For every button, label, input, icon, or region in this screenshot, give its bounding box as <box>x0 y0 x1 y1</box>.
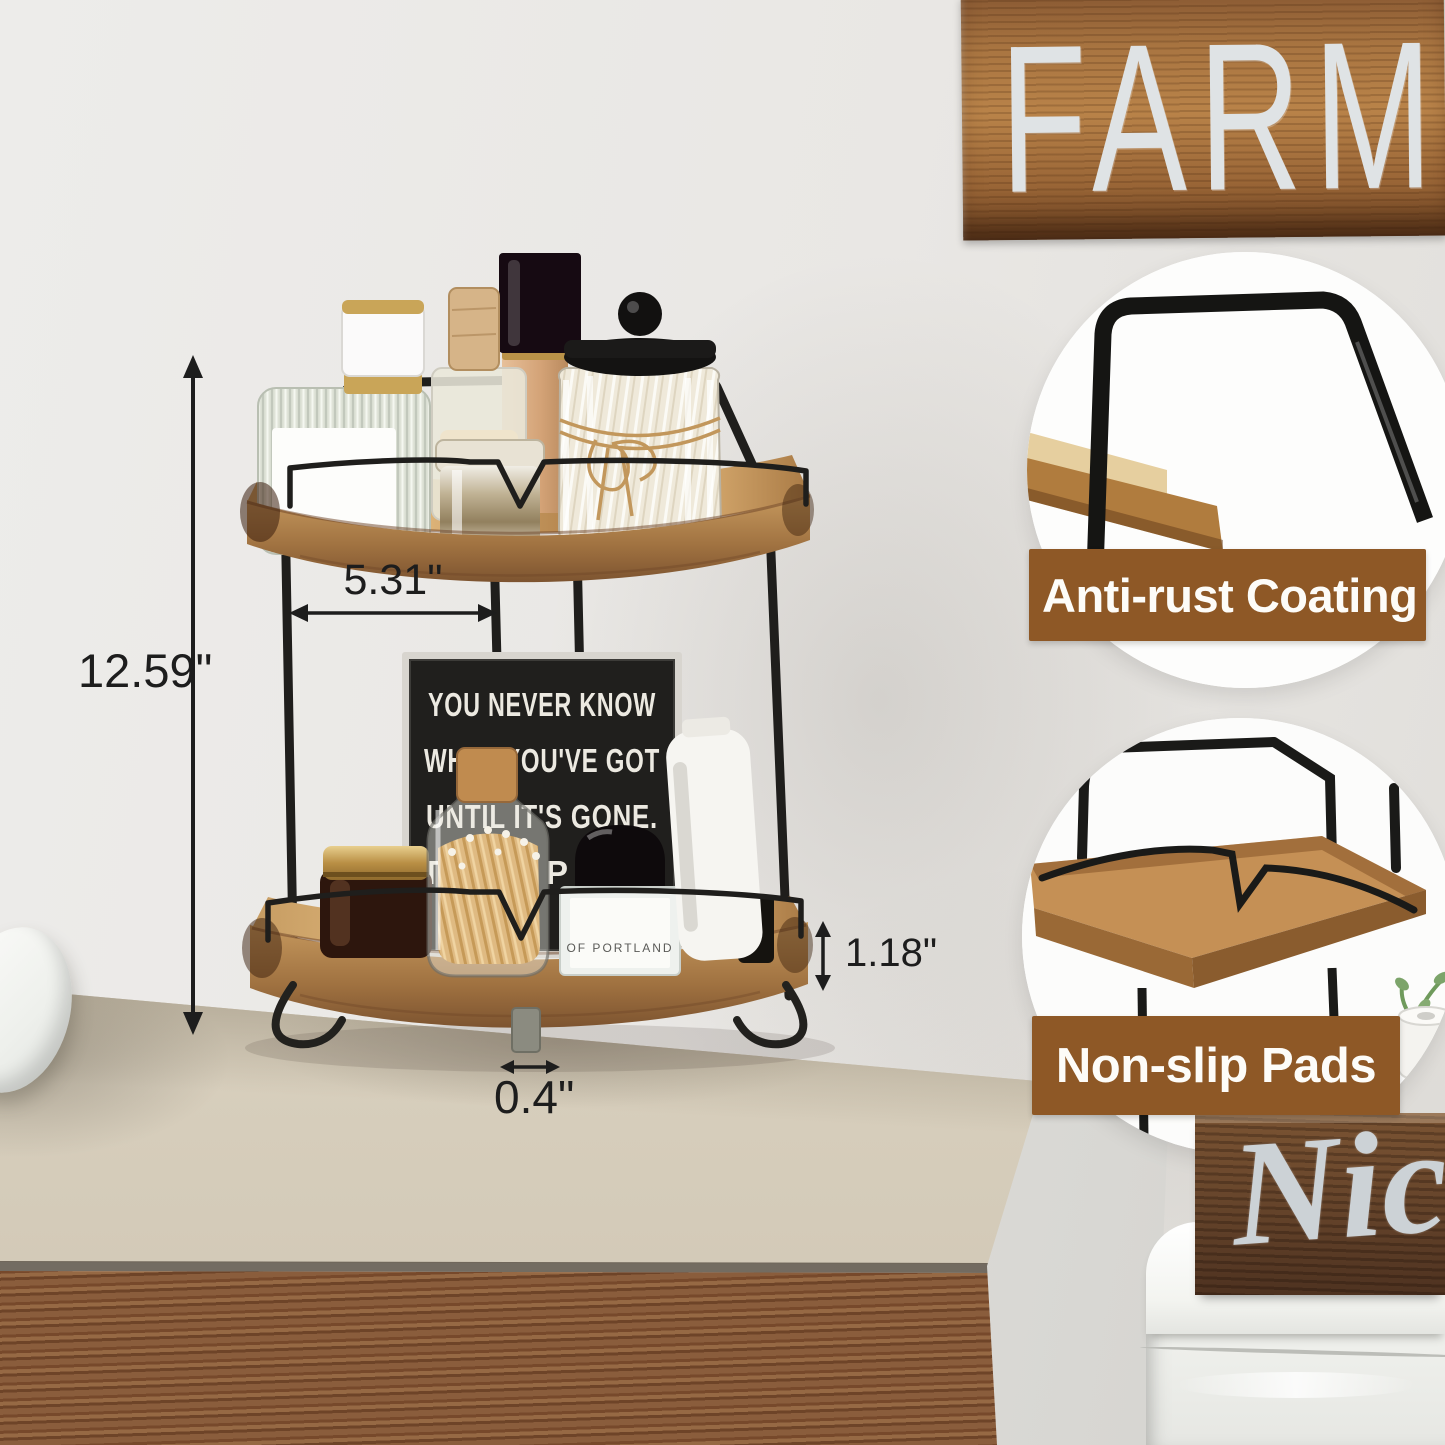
center-foot-nonslip-pad <box>512 1008 540 1052</box>
corner-shelf-organizer: YOU NEVER KNOW WHAT YOU'VE GOT UNTIL IT'… <box>170 225 870 1105</box>
perfume-bottle-black-cap: OF PORTLAND <box>560 825 680 975</box>
burnt-mark <box>242 918 282 978</box>
wood-decor-box: Nice <box>1195 1113 1445 1295</box>
anti-rust-banner-label: Anti-rust Coating <box>1042 568 1417 623</box>
burnt-mark <box>777 917 813 973</box>
cork-stopper <box>457 748 517 802</box>
farmhouse-sign-text: FARMHO <box>999 0 1445 241</box>
amber-cream-jar <box>320 846 432 958</box>
thickness-dimension-label: 1.18" <box>845 931 937 976</box>
toilet-tank-seam <box>1140 1345 1445 1358</box>
height-dimension-label: 12.59" <box>78 643 212 698</box>
non-slip-banner-label: Non-slip Pads <box>1056 1038 1376 1094</box>
top-tier-products <box>258 253 721 554</box>
burnt-mark <box>782 484 814 536</box>
width-dimension-label: 5.31" <box>328 556 458 605</box>
non-slip-banner: Non-slip Pads <box>1032 1016 1400 1115</box>
perfume-label-text: OF PORTLAND <box>566 941 673 955</box>
toilet-paper-roll <box>1398 1007 1445 1078</box>
anti-rust-banner: Anti-rust Coating <box>1029 549 1426 641</box>
decor-box-script-text: Nice <box>1225 1113 1445 1281</box>
white-cream-tube <box>664 715 765 962</box>
foot-dimension-label: 0.4" <box>494 1070 574 1124</box>
mason-jar-cotton-swabs <box>559 292 721 552</box>
burnt-mark <box>240 482 280 542</box>
lid-ball-knob <box>618 292 662 336</box>
sign-line1: YOU NEVER KNOW <box>428 686 656 723</box>
product-photo-scene: FARMHO Nice <box>0 0 1445 1445</box>
farmhouse-wall-sign: FARMHO <box>961 0 1445 241</box>
toilet-tank-highlight <box>1176 1372 1416 1398</box>
